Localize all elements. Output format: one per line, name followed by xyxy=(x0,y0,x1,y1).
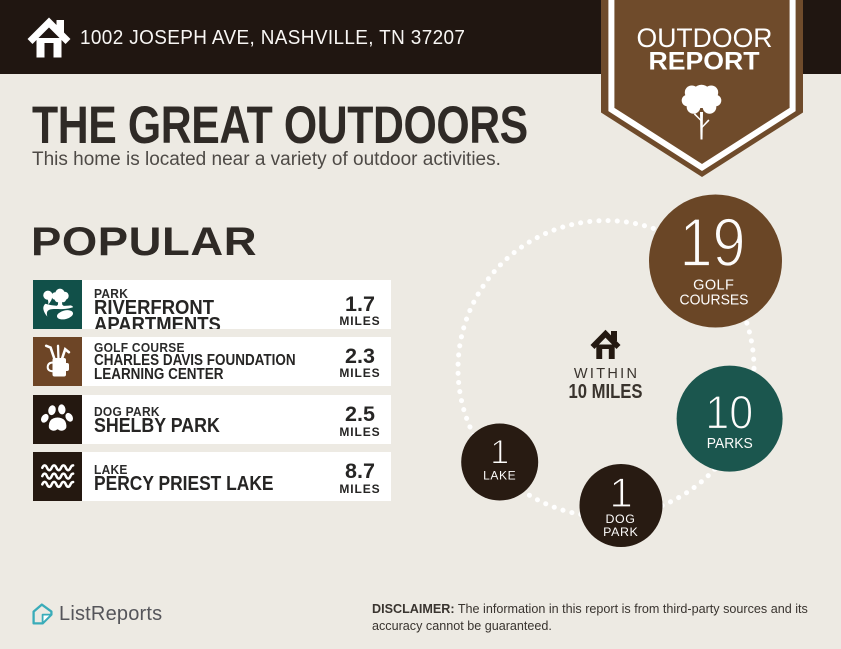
svg-text:1: 1 xyxy=(609,469,632,516)
svg-text:REPORT: REPORT xyxy=(649,47,760,75)
svg-text:COURSES: COURSES xyxy=(680,293,749,309)
svg-text:10: 10 xyxy=(705,386,753,439)
svg-text:10 MILES: 10 MILES xyxy=(569,381,643,403)
svg-text:DOG: DOG xyxy=(605,512,635,526)
svg-text:19: 19 xyxy=(680,204,746,281)
svg-text:PARK: PARK xyxy=(603,525,638,539)
svg-text:LAKE: LAKE xyxy=(483,469,516,483)
svg-text:WITHIN: WITHIN xyxy=(574,366,639,382)
svg-text:PARKS: PARKS xyxy=(707,435,753,452)
svg-text:GOLF: GOLF xyxy=(693,277,734,293)
svg-text:1: 1 xyxy=(490,434,509,472)
